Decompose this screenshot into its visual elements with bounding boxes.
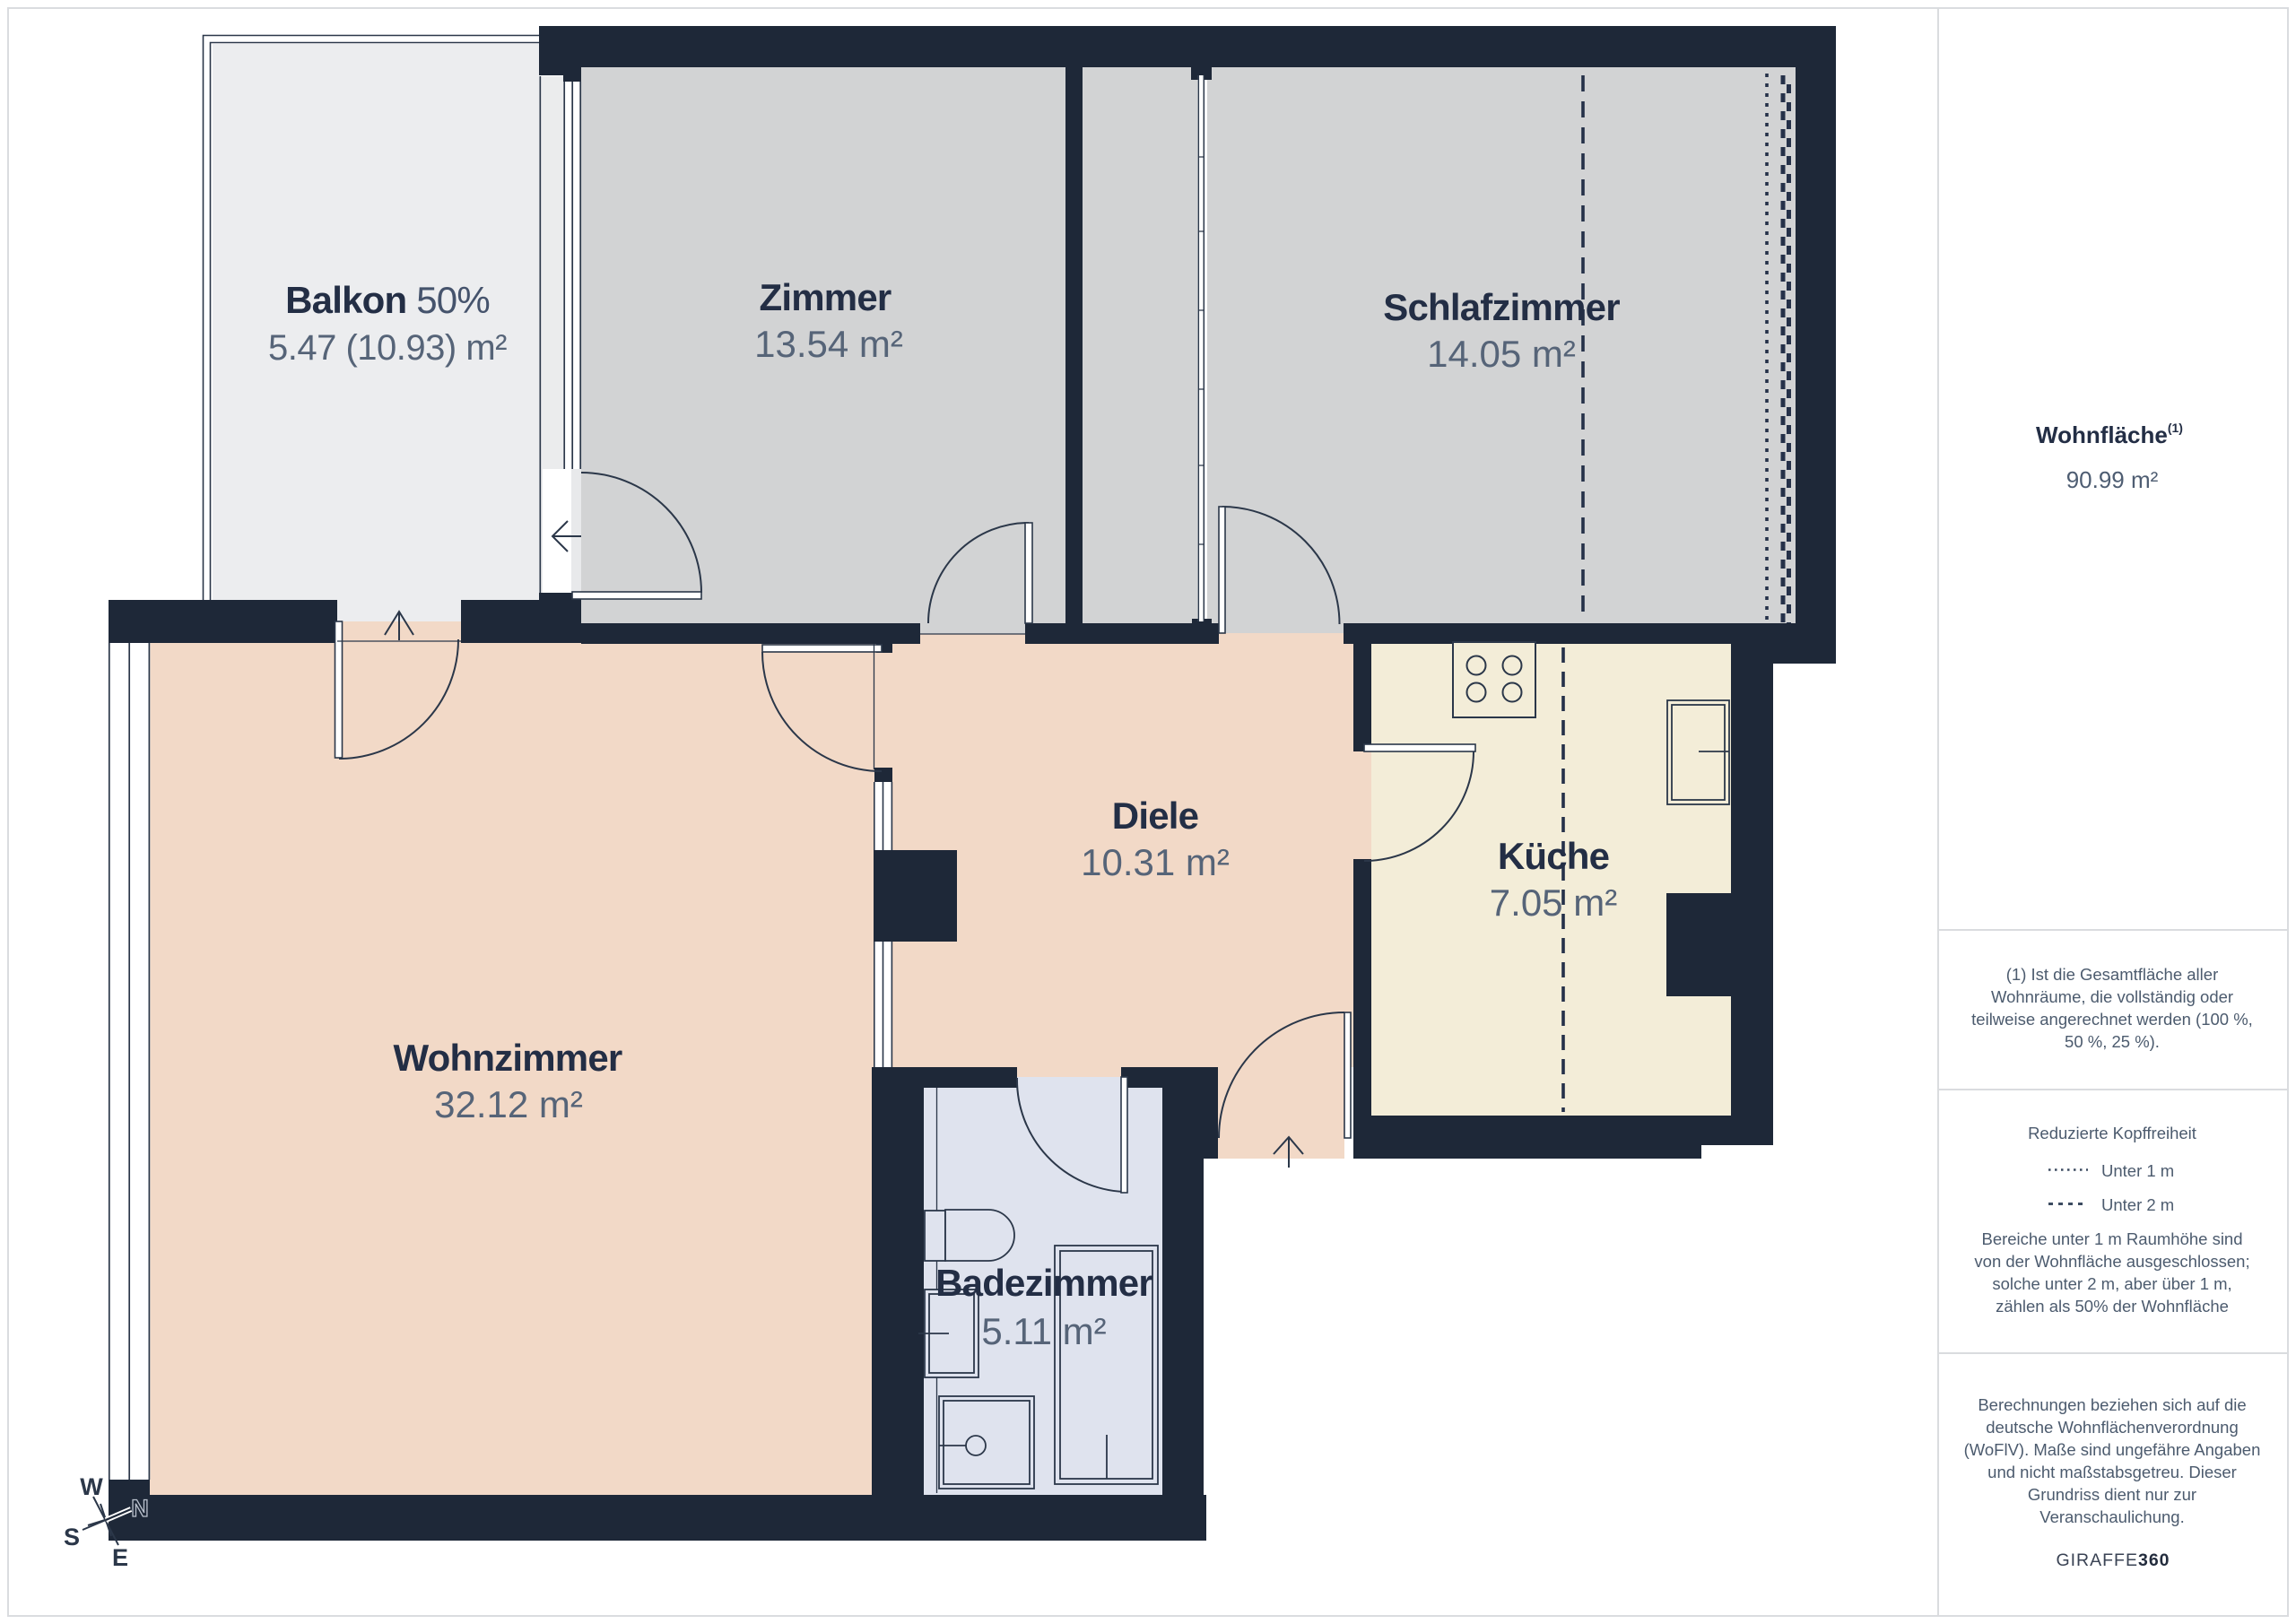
- svg-text:Grundriss dient nur zur: Grundriss dient nur zur: [2028, 1485, 2196, 1504]
- svg-text:32.12 m²: 32.12 m²: [434, 1083, 583, 1125]
- svg-text:zählen als 50% der Wohnfläche: zählen als 50% der Wohnfläche: [1996, 1297, 2229, 1316]
- svg-text:5.47 (10.93) m²: 5.47 (10.93) m²: [268, 328, 507, 368]
- svg-text:Reduzierte Kopffreiheit: Reduzierte Kopffreiheit: [2028, 1124, 2196, 1142]
- svg-text:E: E: [112, 1544, 128, 1571]
- svg-text:Küche: Küche: [1498, 835, 1609, 877]
- svg-text:14.05 m²: 14.05 m²: [1427, 333, 1576, 375]
- svg-text:(WoFlV). Maße sind ungefähre A: (WoFlV). Maße sind ungefähre Angaben: [1964, 1440, 2261, 1459]
- svg-text:Unter 2 m: Unter 2 m: [2101, 1195, 2174, 1214]
- svg-text:Berechnungen beziehen sich auf: Berechnungen beziehen sich auf die: [1978, 1395, 2246, 1414]
- svg-text:Balkon 50%: Balkon 50%: [285, 279, 490, 321]
- svg-text:Wohnfläche(1): Wohnfläche(1): [2036, 421, 2183, 448]
- svg-text:und nicht maßstabsgetreu. Dies: und nicht maßstabsgetreu. Dieser: [1987, 1463, 2237, 1481]
- svg-text:10.31 m²: 10.31 m²: [1081, 841, 1230, 883]
- svg-text:Zimmer: Zimmer: [760, 276, 891, 318]
- svg-text:teilweise angerechnet werden (: teilweise angerechnet werden (100 %,: [1971, 1010, 2253, 1029]
- svg-text:50 %, 25 %).: 50 %, 25 %).: [2065, 1032, 2160, 1051]
- svg-text:Diele: Diele: [1112, 795, 1198, 837]
- svg-text:90.99 m²: 90.99 m²: [2066, 466, 2159, 493]
- svg-text:(1) Ist die Gesamtfläche aller: (1) Ist die Gesamtfläche aller: [2006, 965, 2218, 984]
- svg-text:Schlafzimmer: Schlafzimmer: [1383, 286, 1620, 328]
- svg-text:N: N: [131, 1495, 149, 1522]
- svg-text:7.05 m²: 7.05 m²: [1490, 881, 1617, 924]
- svg-text:W: W: [80, 1473, 103, 1500]
- svg-text:Badezimmer: Badezimmer: [935, 1262, 1152, 1304]
- svg-text:Wohnräume, die vollständig ode: Wohnräume, die vollständig oder: [1991, 987, 2233, 1006]
- svg-text:GIRAFFE360: GIRAFFE360: [2056, 1550, 2170, 1570]
- svg-text:deutsche Wohnflächenverordnung: deutsche Wohnflächenverordnung: [1986, 1418, 2238, 1437]
- svg-text:S: S: [64, 1524, 80, 1550]
- svg-text:13.54 m²: 13.54 m²: [754, 323, 903, 365]
- svg-text:Wohnzimmer: Wohnzimmer: [394, 1037, 622, 1079]
- svg-text:Veranschaulichung.: Veranschaulichung.: [2039, 1507, 2184, 1526]
- svg-text:5.11 m²: 5.11 m²: [981, 1310, 1106, 1352]
- svg-text:von der Wohnfläche ausgeschlos: von der Wohnfläche ausgeschlossen;: [1974, 1252, 2249, 1271]
- svg-text:Unter 1 m: Unter 1 m: [2101, 1161, 2174, 1180]
- svg-text:Bereiche unter 1 m Raumhöhe si: Bereiche unter 1 m Raumhöhe sind: [1981, 1229, 2242, 1248]
- svg-text:solche unter 2 m, aber über 1: solche unter 2 m, aber über 1 m,: [1992, 1274, 2231, 1293]
